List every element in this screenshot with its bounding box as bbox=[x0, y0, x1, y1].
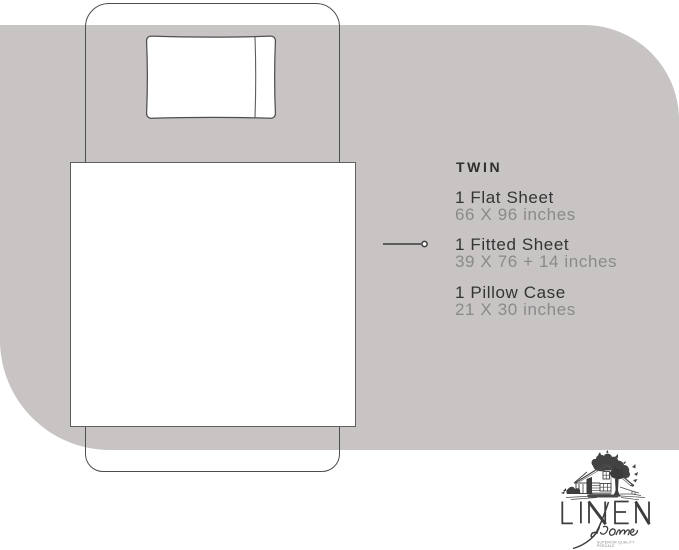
svg-text:PERCALE: PERCALE bbox=[597, 544, 615, 548]
